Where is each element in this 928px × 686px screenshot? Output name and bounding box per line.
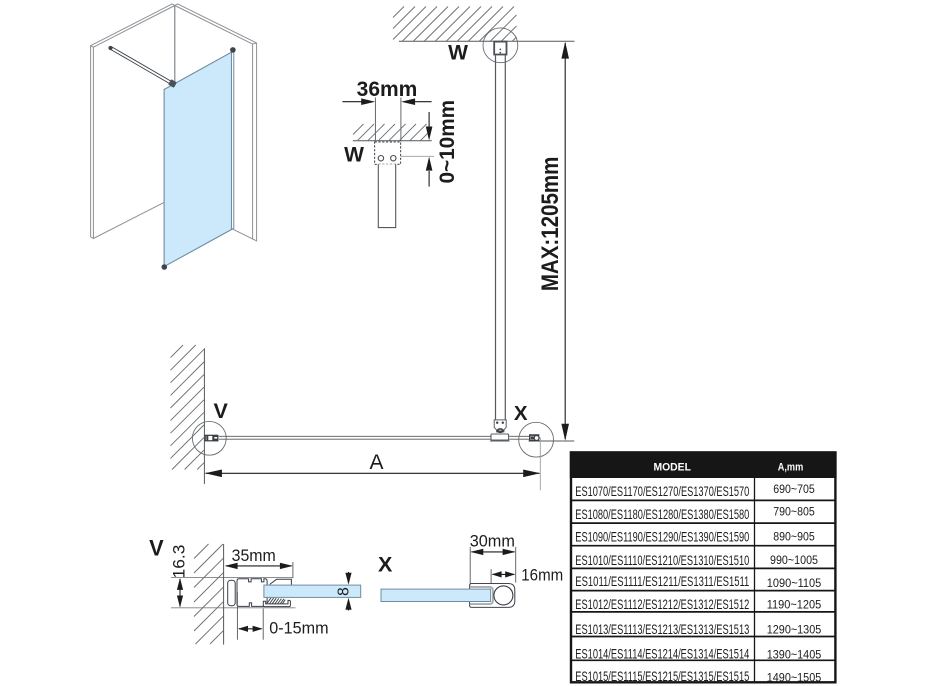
svg-text:ES1011/ES1111/ES1211/ES1311/ES: ES1011/ES1111/ES1211/ES1311/ES1511	[575, 574, 749, 589]
svg-text:MAX:1205mm: MAX:1205mm	[537, 157, 564, 292]
svg-text:ES1080/ES1180/ES1280/ES1380/ES: ES1080/ES1180/ES1280/ES1380/ES1580	[575, 507, 749, 522]
svg-text:36mm: 36mm	[357, 78, 418, 101]
svg-text:16mm: 16mm	[521, 566, 563, 584]
svg-text:0~10mm: 0~10mm	[436, 100, 459, 184]
svg-text:1290~1305: 1290~1305	[767, 622, 822, 636]
svg-text:W: W	[448, 42, 468, 65]
svg-text:ES1090/ES1190/ES1290/ES1390/ES: ES1090/ES1190/ES1290/ES1390/ES1590	[575, 529, 749, 544]
svg-text:30mm: 30mm	[470, 532, 515, 550]
svg-text:1090~1105: 1090~1105	[767, 576, 822, 590]
svg-text:W: W	[344, 144, 364, 167]
svg-text:1190~1205: 1190~1205	[767, 598, 822, 612]
svg-text:ES1013/ES1113/ES1213/ES1313/ES: ES1013/ES1113/ES1213/ES1313/ES1513	[575, 622, 749, 637]
svg-text:A: A	[369, 451, 383, 474]
svg-text:35mm: 35mm	[232, 547, 276, 565]
svg-text:ES1070/ES1170/ES1270/ES1370/ES: ES1070/ES1170/ES1270/ES1370/ES1570	[575, 484, 749, 499]
svg-text:X: X	[514, 402, 528, 425]
svg-text:ES1014/ES1114/ES1214/ES1314/ES: ES1014/ES1114/ES1214/ES1314/ES1514	[575, 647, 749, 662]
svg-text:790~805: 790~805	[773, 505, 815, 519]
svg-text:X: X	[378, 553, 393, 577]
svg-text:ES1010/ES1110/ES1210/ES1310/ES: ES1010/ES1110/ES1210/ES1310/ES1510	[575, 553, 749, 568]
svg-text:990~1005: 990~1005	[770, 553, 818, 567]
svg-text:690~705: 690~705	[773, 482, 815, 496]
svg-text:A,mm: A,mm	[778, 462, 804, 474]
svg-text:ES1012/ES1112/ES1212/ES1312/ES: ES1012/ES1112/ES1212/ES1312/ES1512	[575, 597, 749, 612]
svg-text:8: 8	[335, 587, 352, 596]
svg-text:890~905: 890~905	[773, 530, 815, 544]
svg-text:MODEL: MODEL	[653, 462, 691, 474]
svg-text:16.3: 16.3	[170, 545, 189, 579]
svg-text:V: V	[214, 399, 229, 423]
svg-text:V: V	[149, 536, 164, 561]
svg-text:1390~1405: 1390~1405	[767, 648, 822, 662]
svg-text:0-15mm: 0-15mm	[269, 619, 328, 637]
